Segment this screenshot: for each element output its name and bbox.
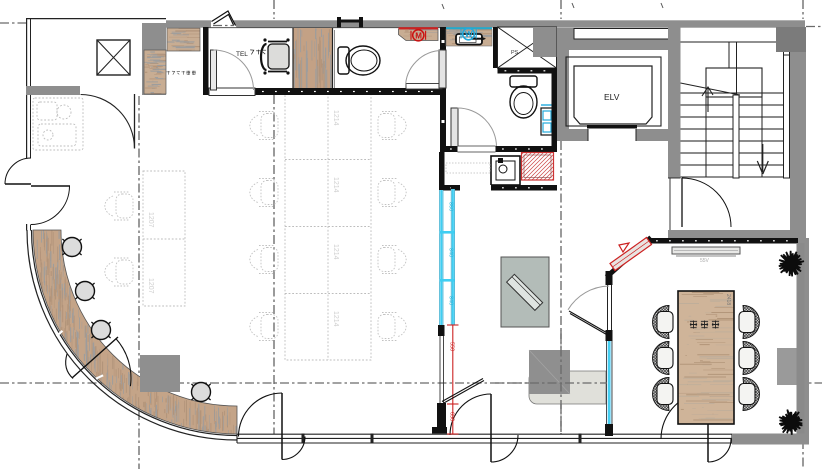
svg-text:ELV: ELV (604, 92, 620, 102)
svg-text:1214: 1214 (332, 177, 339, 193)
svg-text:W: W (465, 30, 473, 39)
svg-text:650: 650 (449, 412, 455, 421)
svg-text:1207: 1207 (147, 278, 154, 294)
svg-text:2418: 2418 (725, 294, 731, 305)
svg-text:TEL: TEL (236, 51, 248, 58)
svg-text:1214: 1214 (332, 244, 339, 260)
svg-text:840: 840 (448, 296, 454, 305)
svg-text:1214: 1214 (332, 311, 339, 327)
svg-text:PS: PS (511, 50, 519, 56)
svg-text:840: 840 (448, 248, 454, 257)
svg-text:550: 550 (449, 342, 455, 351)
svg-text:860: 860 (448, 202, 454, 211)
svg-text:1207: 1207 (147, 212, 154, 228)
svg-text:55V: 55V (700, 258, 710, 264)
svg-text:M: M (415, 31, 422, 40)
svg-text:1214: 1214 (332, 110, 339, 126)
